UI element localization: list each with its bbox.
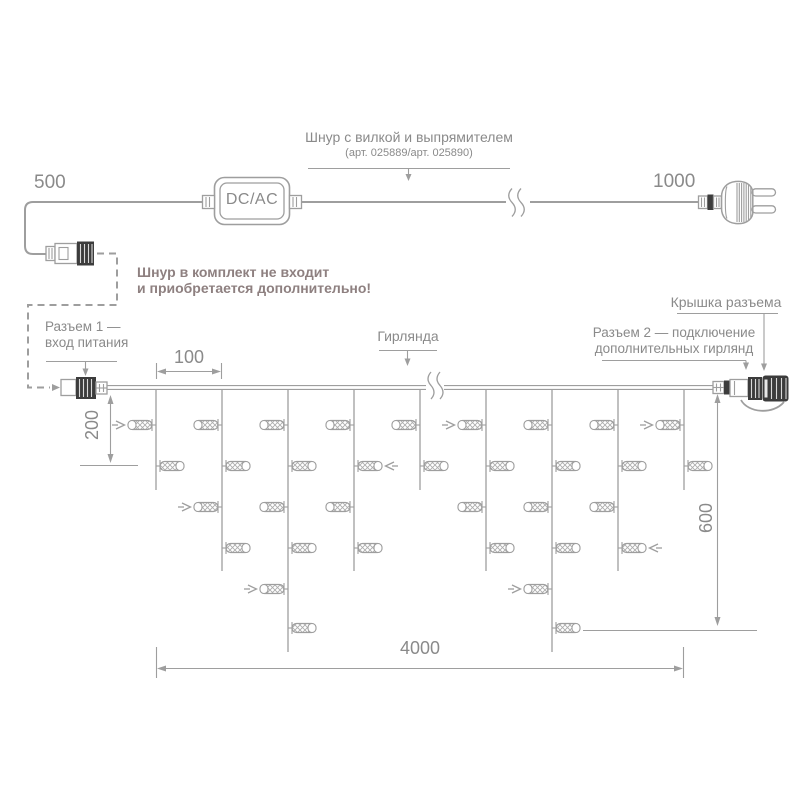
power-cord-assembly xyxy=(25,189,700,255)
light-lens xyxy=(374,544,382,553)
icicle-light xyxy=(354,460,382,472)
dashed-arrowhead xyxy=(52,384,60,391)
connector1-label-line1: Разъем 1 — xyxy=(45,319,121,335)
cord-article-label: (арт. 025889/арт. 025890) xyxy=(298,147,520,160)
plug-inner-contour xyxy=(725,187,727,219)
strand xyxy=(260,390,316,652)
output-connector-coupler xyxy=(713,382,724,394)
light-lens xyxy=(524,585,532,594)
light-lens xyxy=(506,462,514,471)
dim-100-label: 100 xyxy=(163,347,215,368)
light-lens xyxy=(308,462,316,471)
light-lens xyxy=(374,462,382,471)
cord-title-label: Шнур с вилкой и выпрямителем xyxy=(298,129,520,145)
icicle-light xyxy=(156,460,184,472)
light-lens xyxy=(524,503,532,512)
flash-arrow-icon xyxy=(508,585,521,593)
icicle-light xyxy=(288,460,316,472)
icicle-light xyxy=(260,419,288,431)
flash-arrow-icon xyxy=(386,462,399,470)
connector-body xyxy=(55,244,77,264)
icicle-light xyxy=(684,460,712,472)
icicle-light xyxy=(552,542,580,554)
cord-length-1000-label: 1000 xyxy=(653,171,695,193)
icicle-light xyxy=(618,460,646,472)
light-lens xyxy=(458,421,466,430)
connector1-pointer xyxy=(46,362,117,377)
light-lens xyxy=(572,544,580,553)
warning-line1: Шнур в комплект не входит xyxy=(137,264,329,280)
plug-cable-boot xyxy=(699,195,722,211)
icicle-light xyxy=(288,542,316,554)
light-lens xyxy=(194,421,202,430)
light-lens xyxy=(638,544,646,553)
icicle-light xyxy=(486,542,514,554)
cord-length-500-label: 500 xyxy=(34,172,66,194)
light-lens xyxy=(458,503,466,512)
output-connector-ring xyxy=(724,381,730,395)
icicle-light xyxy=(458,501,486,513)
light-lens xyxy=(392,421,400,430)
dcac-right-stub xyxy=(290,196,302,209)
connector1-label-line2: вход питания xyxy=(45,335,128,351)
icicle-light xyxy=(288,622,316,634)
flash-arrow-icon xyxy=(244,585,257,593)
strand xyxy=(590,390,646,571)
icicle-light xyxy=(458,419,486,431)
strand xyxy=(392,390,448,490)
input-connector-body xyxy=(61,380,76,396)
icicle-light xyxy=(420,460,448,472)
light-lens xyxy=(590,503,598,512)
light-lens xyxy=(704,462,712,471)
dcac-label: DC/AC xyxy=(216,191,288,209)
icicle-light xyxy=(222,542,250,554)
diagram-artwork xyxy=(0,0,800,800)
warning-line2: и приобретается дополнительно! xyxy=(137,280,371,296)
light-lens xyxy=(260,585,268,594)
wire-break-symbol xyxy=(428,372,443,399)
garland-technical-diagram: 500 1000 Шнур с вилкой и выпрямителем (а… xyxy=(0,0,800,800)
icicle-light xyxy=(524,419,552,431)
light-lens xyxy=(524,421,532,430)
light-lens xyxy=(656,421,664,430)
light-lens xyxy=(590,421,598,430)
icicle-light xyxy=(326,419,354,431)
output-connector xyxy=(713,377,762,400)
output-connector-body xyxy=(730,380,748,397)
light-lens xyxy=(638,462,646,471)
light-lens xyxy=(308,544,316,553)
icicle-light xyxy=(128,419,156,431)
garland-pointer xyxy=(379,351,437,367)
plug-prong xyxy=(752,189,776,196)
light-lens xyxy=(242,462,250,471)
icicle-light xyxy=(260,583,288,595)
strand xyxy=(458,390,514,571)
light-lens xyxy=(194,503,202,512)
icicle-light xyxy=(260,501,288,513)
icicle-light xyxy=(326,501,354,513)
plug-hatch xyxy=(737,183,751,222)
icicle-strands xyxy=(112,390,712,652)
light-lens xyxy=(128,421,136,430)
dim-600-label: 600 xyxy=(696,496,716,540)
cap-slot xyxy=(765,380,768,398)
connector2-label-line2: дополнительных гирлянд xyxy=(592,341,756,357)
icicle-light xyxy=(552,460,580,472)
light-lens xyxy=(440,462,448,471)
garland-label: Гирлянда xyxy=(348,328,468,344)
icicle-light xyxy=(486,460,514,472)
flash-arrow-icon xyxy=(650,544,663,552)
connector2-pointer xyxy=(602,361,749,371)
icicle-light xyxy=(552,622,580,634)
main-wire xyxy=(107,372,713,399)
flash-arrow-icon xyxy=(112,421,125,429)
connector-neck xyxy=(46,247,55,261)
light-lens xyxy=(506,544,514,553)
flash-arrow-icon xyxy=(442,421,455,429)
strand xyxy=(128,390,184,490)
icicle-light xyxy=(524,583,552,595)
cord-annotation-pointer xyxy=(308,169,510,182)
light-lens xyxy=(326,421,334,430)
dcac-left-stub xyxy=(203,196,215,209)
connector2-label-line1: Разъем 2 — подключение xyxy=(592,325,756,341)
light-lens xyxy=(572,462,580,471)
cord-break-symbol xyxy=(509,189,525,217)
icicle-light xyxy=(618,542,646,554)
dim-4000-label: 4000 xyxy=(378,638,462,659)
light-lens xyxy=(572,624,580,633)
icicle-light xyxy=(354,542,382,554)
strand xyxy=(194,390,250,571)
icicle-light xyxy=(194,501,222,513)
dim-200-label: 200 xyxy=(82,403,102,447)
light-lens xyxy=(260,503,268,512)
cap-label: Крышка разъема xyxy=(648,294,800,310)
strand xyxy=(524,390,580,652)
light-lens xyxy=(308,624,316,633)
light-lens xyxy=(242,544,250,553)
flash-arrow-icon xyxy=(178,503,191,511)
flash-arrow-icon xyxy=(640,421,653,429)
strand xyxy=(326,390,382,571)
cap-strap xyxy=(741,400,784,411)
light-lens xyxy=(260,421,268,430)
power-plug xyxy=(699,181,776,223)
strand xyxy=(656,390,712,490)
light-lens xyxy=(176,462,184,471)
icicle-light xyxy=(590,501,618,513)
icicle-light xyxy=(222,460,250,472)
plug-prong xyxy=(752,206,776,213)
input-connector-coupler xyxy=(96,382,107,394)
icicle-light xyxy=(392,419,420,431)
icicle-light xyxy=(656,419,684,431)
icicle-light xyxy=(194,419,222,431)
icicle-light xyxy=(524,501,552,513)
icicle-light xyxy=(590,419,618,431)
light-lens xyxy=(326,503,334,512)
garland-input-connector xyxy=(61,377,107,399)
power-connector-male xyxy=(46,242,94,266)
